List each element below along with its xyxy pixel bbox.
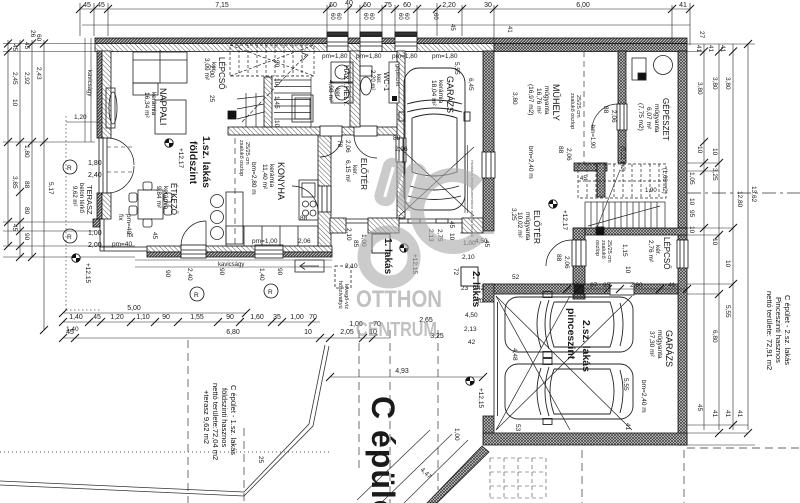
svg-text:bm=2,40 m: bm=2,40 m	[640, 380, 647, 413]
svg-text:10: 10	[273, 120, 280, 128]
svg-text:(7,75 m2): (7,75 m2)	[637, 103, 644, 131]
svg-text:10: 10	[688, 226, 695, 234]
svg-text:2,30: 2,30	[630, 282, 643, 289]
svg-text:10: 10	[273, 78, 280, 86]
svg-text:Pinceszinti hasznos: Pinceszinti hasznos	[774, 297, 783, 363]
svg-text:35: 35	[273, 314, 281, 321]
svg-text:7,15: 7,15	[215, 2, 229, 9]
svg-text:bm=1,90: bm=1,90	[589, 125, 595, 149]
svg-text:88: 88	[393, 135, 401, 142]
svg-text:42: 42	[468, 339, 476, 346]
svg-text:2,05: 2,05	[340, 329, 354, 336]
svg-text:2,40: 2,40	[88, 172, 102, 179]
svg-text:90: 90	[164, 270, 171, 278]
svg-text:1,10: 1,10	[136, 314, 150, 321]
svg-text:10: 10	[624, 266, 631, 274]
svg-text:kavicságy: kavicságy	[86, 70, 92, 96]
svg-text:60: 60	[363, 2, 371, 9]
svg-text:10: 10	[11, 99, 18, 107]
svg-text:25: 25	[208, 95, 215, 103]
svg-text:12,80: 12,80	[736, 191, 743, 208]
svg-text:42: 42	[477, 285, 485, 292]
svg-text:műgyanta: műgyanta	[656, 330, 663, 359]
svg-text:41: 41	[707, 45, 714, 53]
svg-text:2,10: 2,10	[462, 254, 475, 261]
svg-text:2,10: 2,10	[345, 263, 358, 270]
svg-text:90: 90	[226, 314, 234, 321]
svg-text:85: 85	[352, 240, 359, 248]
svg-text:27: 27	[698, 31, 705, 39]
svg-text:45: 45	[93, 314, 101, 321]
svg-text:2,40: 2,40	[186, 268, 193, 281]
svg-text:kerámia: kerámia	[268, 164, 275, 188]
svg-text:Otthon Centrum - minden jog fe: Otthon Centrum - minden jog fenntartva	[497, 290, 568, 295]
svg-text:1,80: 1,80	[23, 145, 30, 158]
svg-text:10: 10	[688, 198, 695, 206]
svg-text:45: 45	[97, 2, 105, 9]
svg-text:88: 88	[557, 146, 564, 154]
svg-text:földszinti hasznos: földszinti hasznos	[220, 388, 229, 447]
svg-text:18,04 m²: 18,04 m²	[430, 80, 437, 106]
svg-text:41: 41	[711, 410, 718, 418]
svg-text:2.sz. lakás: 2.sz. lakás	[580, 320, 592, 372]
svg-text:4,93: 4,93	[395, 368, 409, 375]
svg-text:1,60: 1,60	[250, 314, 264, 321]
svg-text:2,10: 2,10	[345, 228, 352, 241]
svg-text:10: 10	[304, 329, 312, 336]
svg-text:GÉPÉSZET: GÉPÉSZET	[661, 98, 670, 141]
svg-text:1,05: 1,05	[688, 172, 695, 185]
svg-text:1,45: 1,45	[273, 96, 280, 109]
svg-text:2,76 m²: 2,76 m²	[647, 240, 654, 263]
svg-text:95: 95	[688, 210, 695, 218]
svg-text:41: 41	[719, 45, 726, 53]
svg-text:90: 90	[162, 314, 170, 321]
svg-text:10: 10	[724, 260, 731, 268]
svg-text:1,40: 1,40	[69, 314, 83, 321]
svg-text:ker.: ker.	[351, 165, 358, 176]
svg-text:78: 78	[336, 140, 343, 148]
svg-text:5,55: 5,55	[724, 305, 731, 318]
svg-text:52: 52	[512, 274, 520, 281]
svg-text:90: 90	[273, 60, 280, 68]
svg-text:2,00: 2,00	[88, 242, 102, 249]
svg-text:2,06: 2,06	[563, 256, 570, 269]
svg-text:pm=1,80: pm=1,80	[356, 53, 382, 60]
svg-text:műgyanta: műgyanta	[653, 104, 660, 133]
svg-text:2,06: 2,06	[565, 148, 572, 161]
svg-text:10: 10	[696, 146, 703, 154]
svg-text:pm=1,80: pm=1,80	[432, 53, 458, 60]
svg-text:R: R	[268, 289, 273, 296]
svg-text:pm=1,80: pm=1,80	[392, 53, 418, 60]
svg-text:88: 88	[300, 215, 308, 222]
svg-text:+12,15: +12,15	[84, 263, 91, 283]
svg-text:kerámia: kerámia	[162, 186, 169, 210]
svg-text:MŰHELY: MŰHELY	[551, 84, 561, 121]
svg-text:70: 70	[309, 314, 317, 321]
svg-text:műgyanta: műgyanta	[543, 86, 550, 115]
svg-text:Hivatalos tervdokumentáció ala: Hivatalos tervdokumentáció alapján készü…	[470, 160, 475, 238]
svg-text:(1,68 m2): (1,68 m2)	[661, 168, 667, 194]
svg-text:45: 45	[580, 176, 587, 182]
svg-text:R: R	[67, 234, 72, 241]
svg-text:3,85: 3,85	[11, 176, 18, 189]
svg-text:16,34 m²: 16,34 m²	[143, 92, 150, 118]
svg-text:2,43: 2,43	[35, 67, 42, 80]
svg-text:R: R	[67, 165, 72, 172]
svg-text:C épület: C épület	[365, 396, 401, 503]
svg-text:5,17: 5,17	[47, 182, 54, 195]
svg-text:60: 60	[368, 13, 374, 20]
svg-text:26: 26	[29, 30, 36, 38]
svg-text:60: 60	[329, 2, 337, 9]
svg-text:41: 41	[724, 410, 731, 418]
svg-text:60: 60	[403, 13, 409, 20]
svg-text:60: 60	[329, 13, 335, 20]
svg-text:nettó területe:72,04 m2: nettó területe:72,04 m2	[211, 383, 220, 460]
svg-text:+12,17: +12,17	[561, 210, 568, 230]
svg-text:80: 80	[23, 207, 30, 215]
svg-text:gépészet: gépészet	[394, 64, 400, 87]
svg-text:földszint: földszint	[187, 141, 199, 185]
svg-text:TERASZ: TERASZ	[85, 185, 94, 215]
svg-text:pm=1,00: pm=1,00	[252, 238, 278, 245]
svg-text:NAPPALI: NAPPALI	[158, 88, 168, 125]
svg-text:1,15: 1,15	[621, 244, 628, 257]
svg-text:60: 60	[35, 34, 42, 42]
svg-text:60: 60	[397, 13, 403, 20]
svg-text:41: 41	[506, 26, 512, 33]
svg-text:45: 45	[151, 232, 158, 240]
svg-text:2,20: 2,20	[442, 2, 456, 9]
svg-text:1,00: 1,00	[88, 230, 102, 237]
svg-text:C épület - 1.sz. lakás: C épület - 1.sz. lakás	[229, 385, 238, 455]
svg-text:ELŐTÉR: ELŐTÉR	[359, 158, 368, 190]
svg-text:60: 60	[403, 2, 411, 9]
svg-text:41: 41	[624, 423, 631, 431]
svg-text:1,20: 1,20	[110, 314, 124, 321]
svg-text:LÉPCSŐ: LÉPCSŐ	[217, 57, 226, 89]
svg-text:(16,97 m2): (16,97 m2)	[527, 84, 534, 115]
svg-text:45: 45	[448, 221, 455, 229]
svg-text:4,50: 4,50	[465, 312, 478, 319]
svg-text:6,45: 6,45	[467, 78, 474, 91]
svg-text:2,45: 2,45	[11, 72, 18, 85]
svg-text:nettó területe: 72,91 m2: nettó területe: 72,91 m2	[765, 291, 774, 370]
svg-text:88: 88	[555, 254, 562, 262]
svg-text:6,07 m²: 6,07 m²	[645, 107, 652, 130]
svg-text:hőszivattyú: hőszivattyú	[337, 281, 343, 309]
svg-text:90: 90	[218, 268, 225, 276]
svg-text:kerámia: kerámia	[437, 80, 444, 104]
svg-text:10: 10	[572, 282, 580, 289]
svg-text:3,25: 3,25	[510, 208, 517, 221]
svg-text:KONYHA: KONYHA	[276, 162, 286, 200]
svg-text:45: 45	[696, 404, 703, 412]
svg-text:25: 25	[603, 282, 611, 289]
svg-text:30: 30	[484, 2, 492, 9]
svg-text:1,20: 1,20	[74, 114, 87, 121]
svg-text:45: 45	[23, 42, 30, 50]
svg-text:(0,21 m2): (0,21 m2)	[619, 146, 625, 172]
svg-text:41: 41	[695, 45, 702, 53]
svg-text:3,80: 3,80	[696, 82, 703, 95]
svg-text:23: 23	[461, 285, 469, 292]
svg-text:6,80: 6,80	[711, 330, 718, 343]
svg-text:5,00: 5,00	[127, 305, 141, 312]
svg-text:6,80: 6,80	[226, 329, 240, 336]
svg-text:75: 75	[384, 2, 392, 9]
svg-text:bm=2,40 m: bm=2,40 m	[527, 146, 534, 179]
svg-text:9,62 m²: 9,62 m²	[71, 186, 77, 206]
svg-text:9,84 m²: 9,84 m²	[155, 186, 162, 209]
svg-text:40: 40	[345, 0, 353, 7]
svg-text:88: 88	[602, 106, 609, 114]
svg-text:bm=2,80 m: bm=2,80 m	[250, 162, 257, 195]
svg-text:90: 90	[23, 233, 30, 241]
svg-text:45: 45	[66, 329, 74, 336]
svg-text:+12,15: +12,15	[477, 388, 484, 408]
svg-text:2,20 m²: 2,20 m²	[369, 70, 375, 90]
svg-text:4,48: 4,48	[511, 348, 518, 361]
svg-text:53: 53	[514, 424, 521, 432]
svg-text:10: 10	[711, 238, 718, 246]
svg-text:5,55: 5,55	[453, 62, 460, 75]
svg-text:2,06: 2,06	[344, 140, 351, 153]
svg-text:3,80: 3,80	[511, 92, 518, 105]
svg-text:1,00: 1,00	[453, 428, 460, 441]
svg-text:3,80: 3,80	[711, 77, 718, 90]
svg-text:6,15 m²: 6,15 m²	[344, 160, 351, 183]
svg-text:HÁZT.HELY.: HÁZT.HELY.	[342, 65, 351, 106]
svg-text:41: 41	[679, 2, 687, 9]
svg-text:41: 41	[736, 410, 743, 418]
svg-text:ÉTKEZŐ: ÉTKEZŐ	[169, 183, 178, 215]
svg-text:ker.: ker.	[334, 88, 341, 99]
svg-text:1,55: 1,55	[190, 314, 204, 321]
svg-text:R: R	[194, 292, 199, 299]
svg-text:2,13: 2,13	[464, 326, 477, 333]
svg-text:45: 45	[11, 224, 18, 232]
svg-text:5,55: 5,55	[622, 378, 629, 391]
svg-text:LÉPCSŐ: LÉPCSŐ	[662, 237, 671, 269]
svg-text:fix: fix	[127, 232, 134, 239]
svg-text:6,00: 6,00	[576, 2, 590, 9]
svg-text:10: 10	[711, 148, 718, 156]
svg-text:2,06: 2,06	[395, 146, 408, 153]
svg-text:45: 45	[11, 44, 18, 52]
svg-text:30: 30	[476, 298, 484, 305]
svg-text:2,92: 2,92	[23, 72, 30, 85]
svg-text:fix: fix	[117, 214, 124, 221]
svg-text:2,00: 2,00	[208, 65, 215, 78]
svg-text:41: 41	[668, 282, 676, 289]
svg-text:3,80: 3,80	[724, 77, 731, 90]
svg-text:2,06: 2,06	[298, 238, 311, 245]
svg-text:25: 25	[257, 456, 264, 464]
svg-text:60: 60	[362, 13, 368, 20]
svg-text:zsalukő oszlop: zsalukő oszlop	[569, 93, 575, 129]
svg-text:37,30 m²: 37,30 m²	[648, 331, 655, 357]
svg-text:13,62: 13,62	[750, 186, 757, 203]
svg-text:3,25: 3,25	[711, 168, 718, 181]
svg-text:kér.: kér.	[654, 245, 661, 256]
svg-text:1,40: 1,40	[258, 268, 265, 281]
svg-text:GARÁZS: GARÁZS	[664, 330, 674, 367]
svg-text:2,06: 2,06	[610, 110, 617, 123]
svg-text:16,76 m²: 16,76 m²	[535, 88, 542, 114]
svg-text:90: 90	[276, 268, 283, 276]
svg-text:88: 88	[23, 181, 30, 189]
svg-text:GARÁZS: GARÁZS	[445, 76, 455, 113]
svg-text:67: 67	[590, 282, 598, 289]
svg-text:60: 60	[432, 13, 438, 20]
svg-text:oszlop: oszlop	[594, 240, 600, 256]
svg-text:1. lakás: 1. lakás	[382, 238, 393, 275]
svg-text:+terasz 9,62 m2: +terasz 9,62 m2	[202, 390, 211, 444]
svg-text:kerámia: kerámia	[150, 92, 157, 116]
svg-text:1,00: 1,00	[290, 314, 304, 321]
svg-text:4,98 m²: 4,98 m²	[327, 80, 334, 103]
svg-text:pm=1,80: pm=1,80	[322, 53, 348, 60]
svg-text:pinceszint: pinceszint	[565, 308, 577, 360]
svg-text:CENTRUM: CENTRUM	[356, 319, 437, 341]
svg-text:ELŐTÉR: ELŐTÉR	[532, 210, 542, 244]
svg-text:OTTHON: OTTHON	[356, 286, 442, 313]
svg-text:C épület - 2.sz. lakás: C épület - 2.sz. lakás	[783, 295, 792, 365]
svg-text:1,90: 1,90	[645, 188, 657, 194]
svg-text:11,40 m²: 11,40 m²	[261, 164, 268, 190]
svg-text:10: 10	[448, 233, 455, 241]
svg-text:45: 45	[83, 2, 91, 9]
svg-text:pm=40: pm=40	[112, 241, 132, 248]
svg-text:45: 45	[449, 24, 455, 31]
svg-text:1,80: 1,80	[88, 160, 102, 167]
svg-text:+12,17: +12,17	[177, 148, 184, 168]
svg-text:zsalukő oszlop: zsalukő oszlop	[238, 140, 244, 176]
svg-text:1.sz. lakás: 1.sz. lakás	[200, 136, 212, 188]
svg-text:60: 60	[335, 13, 341, 20]
svg-text:műgyanta: műgyanta	[524, 212, 531, 241]
svg-text:beton térkő: beton térkő	[78, 183, 84, 214]
svg-text:72: 72	[452, 268, 459, 276]
